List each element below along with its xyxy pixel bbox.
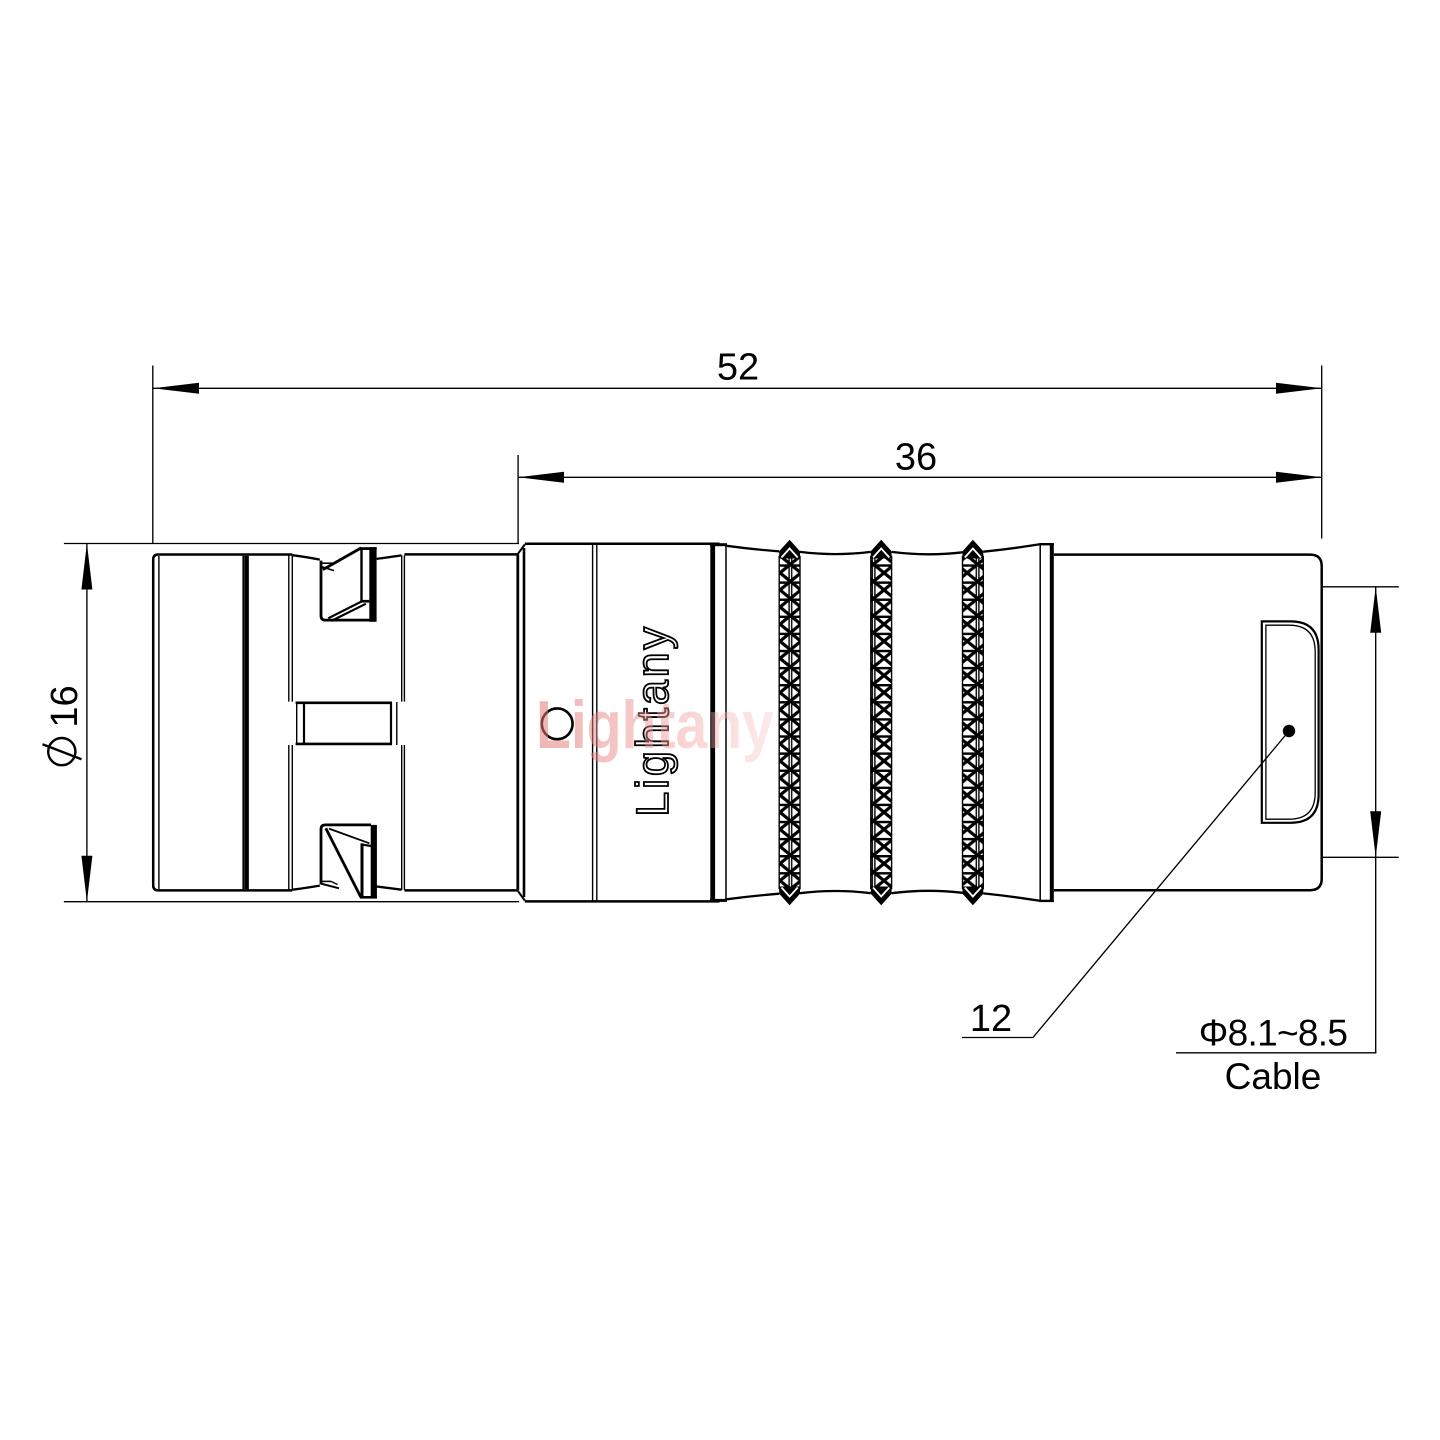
svg-text:12: 12 [970, 998, 1012, 1040]
svg-text:16: 16 [44, 685, 86, 727]
svg-text:Lightany: Lightany [536, 687, 774, 763]
svg-text:36: 36 [895, 437, 937, 479]
svg-text:Cable: Cable [1225, 1056, 1322, 1097]
svg-text:52: 52 [717, 347, 759, 389]
svg-text:Φ8.1~8.5: Φ8.1~8.5 [1199, 1013, 1348, 1054]
